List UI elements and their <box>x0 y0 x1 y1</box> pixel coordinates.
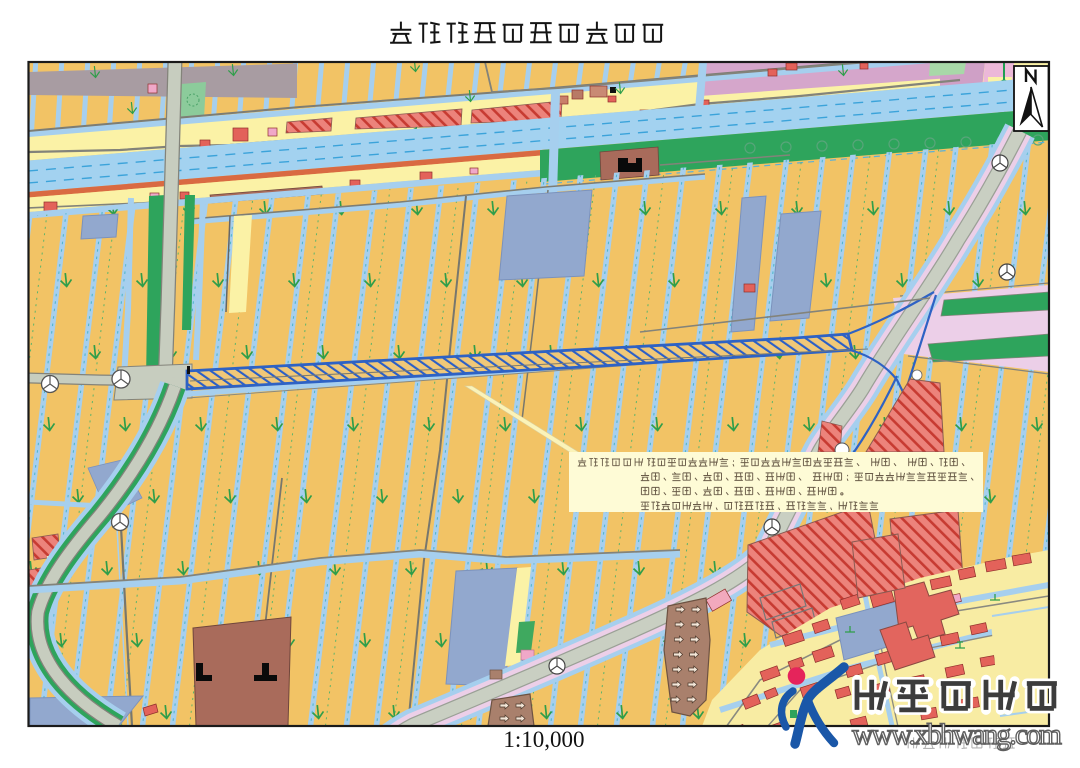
svg-text:www.xbhwang.com: www.xbhwang.com <box>852 719 1062 751</box>
svg-text:1:10,000: 1:10,000 <box>503 727 584 752</box>
